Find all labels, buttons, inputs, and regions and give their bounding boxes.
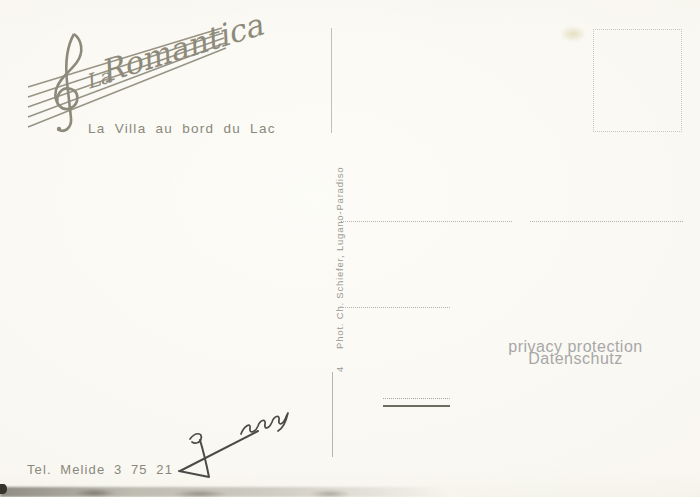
scan-smudge	[560, 26, 586, 42]
underline-mark	[383, 405, 450, 407]
address-line-3	[383, 398, 450, 399]
card-subtitle: La Villa au bord du Lac	[88, 121, 276, 136]
divider-line-top	[331, 28, 332, 133]
postcard-back: La Romantica La Villa au bord du Lac 4 P…	[0, 0, 700, 497]
brand-name: Romantica	[96, 10, 268, 90]
address-line-1a	[341, 221, 512, 222]
phone-number: Tel. Melide 3 75 21	[27, 462, 173, 477]
scan-edge-band	[0, 487, 448, 497]
address-line-2	[338, 307, 450, 308]
scan-corner-mark	[0, 484, 7, 494]
signature-icon	[165, 400, 305, 490]
photographer-credit: 4 Phot. Ch. Schiefer, Lugano-Paradiso	[331, 148, 345, 372]
treble-clef-icon	[55, 34, 81, 131]
stamp-box-icon	[593, 29, 682, 132]
brand-logo: La Romantica	[14, 10, 286, 172]
address-line-1b	[530, 221, 683, 222]
divider-line-bottom	[332, 372, 333, 457]
credit-text: Phot. Ch. Schiefer, Lugano-Paradiso	[334, 167, 345, 349]
card-number: 4	[334, 366, 345, 372]
privacy-watermark: privacy protection Datenschutz	[483, 341, 668, 364]
